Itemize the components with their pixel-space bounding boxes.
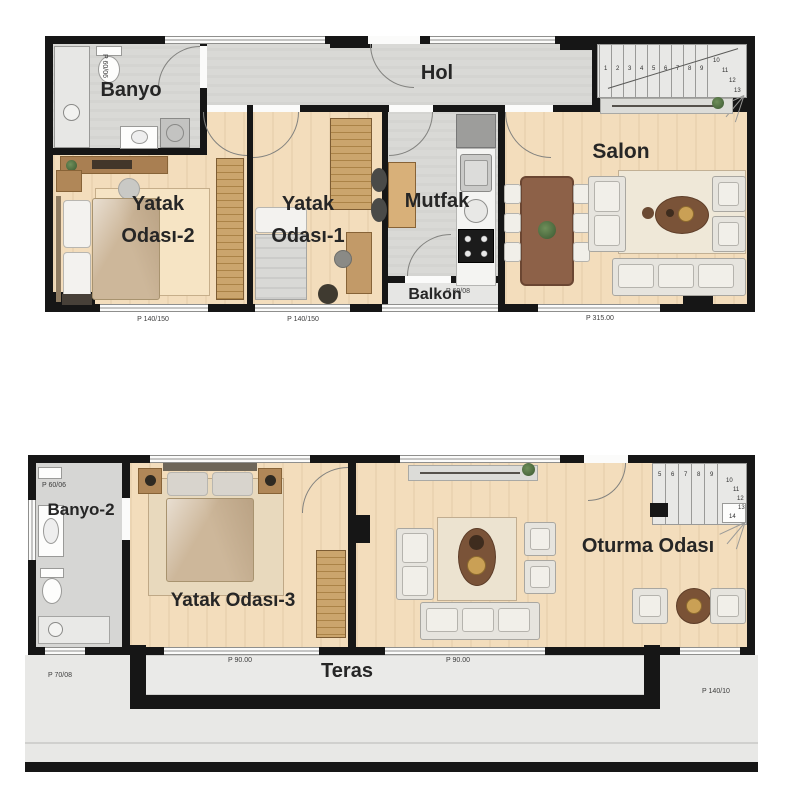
label-mutfak: Mutfak	[405, 190, 469, 213]
armchair-cushion	[530, 566, 550, 588]
armchair-cushion	[718, 182, 739, 206]
dining-centerpiece	[538, 221, 556, 239]
kitchen-chair	[371, 168, 387, 192]
window	[165, 36, 325, 44]
stove	[458, 229, 494, 263]
tray-icon	[678, 206, 694, 222]
label-salon: Salon	[592, 140, 649, 164]
sofa-cushion	[426, 608, 458, 632]
label-yatak1-line1: Yatak	[271, 188, 344, 220]
floor-plan-page: 1 2 3 4 5 6 7 8 9 10 11 12 13	[0, 0, 800, 800]
loveseat-cushion	[594, 215, 620, 246]
stair-step-number: 5	[652, 66, 655, 72]
shower-head-icon	[63, 104, 80, 121]
lamp-icon	[265, 475, 276, 486]
lamp-icon	[145, 475, 156, 486]
desk-chair-yatak1	[334, 250, 352, 268]
dining-chair	[504, 242, 521, 262]
pillow-yatak2	[63, 252, 91, 298]
wall-pier	[560, 36, 600, 50]
armchair-cushion	[530, 528, 550, 550]
entry-opening-lower	[584, 455, 628, 463]
console-rod	[420, 472, 520, 474]
basin-banyo	[131, 130, 148, 144]
label-yatak1-line2: Odası-1	[271, 220, 344, 252]
sink-basin	[464, 160, 488, 186]
sliding-door-teras	[385, 647, 545, 655]
plant-dark-icon	[318, 284, 338, 304]
armchair-cushion	[717, 595, 739, 617]
window	[150, 455, 310, 463]
wall-pier	[650, 503, 668, 517]
stair-step-number: 3	[628, 66, 631, 72]
window-side	[28, 500, 36, 560]
label-banyo: Banyo	[100, 79, 161, 102]
door-opening-salon	[505, 105, 553, 112]
window	[100, 304, 208, 312]
dim-label-salon-window: P 315.00	[586, 315, 614, 322]
wall-pier	[348, 515, 370, 543]
side-table-salon	[642, 207, 654, 219]
console-rod	[612, 105, 720, 107]
dim-label-yatak2-window: P 140/150	[137, 316, 169, 323]
balcony-railing	[382, 304, 498, 312]
wall-pier	[330, 36, 372, 48]
dim-label-banyo2-window: P 70/08	[48, 672, 72, 679]
stair-step-number: 11	[733, 487, 739, 493]
stair-step-number: 7	[684, 472, 687, 478]
door-opening-balkon	[405, 276, 451, 283]
dim-label-teras-window-2: P 90.00	[446, 657, 470, 664]
wardrobe-yatak2	[216, 158, 244, 300]
plant-icon	[712, 97, 724, 109]
pillow-yatak3	[167, 472, 208, 496]
nightstand-yatak2	[56, 170, 82, 192]
label-yatak1: Yatak Odası-1	[271, 188, 344, 252]
stair-step-number: 11	[722, 68, 728, 74]
armchair-cushion	[718, 222, 739, 246]
wall	[498, 112, 505, 304]
dim-label-banyo-side: P 60/06	[101, 54, 108, 78]
shower-drain-icon	[48, 622, 63, 637]
window	[255, 304, 350, 312]
stair-step-number: 13	[738, 505, 745, 511]
loveseat-cushion	[594, 181, 620, 212]
dining-chair	[504, 213, 521, 233]
entry-opening	[368, 36, 420, 44]
label-teras: Teras	[321, 660, 373, 683]
shower-banyo	[54, 46, 90, 148]
label-yatak3: Yatak Odası-3	[171, 590, 296, 612]
teras-wall-right	[644, 645, 660, 709]
stair-step-number: 1	[604, 66, 607, 72]
dim-label-balkon-sill: P 60/08	[446, 288, 470, 295]
stair-step-number: 6	[671, 472, 674, 478]
dim-label-teras-window-1: P 90.00	[228, 657, 252, 664]
stair-step-number: 10	[713, 58, 720, 64]
tray-icon	[686, 598, 702, 614]
wall	[45, 148, 207, 155]
armchair-cushion	[639, 595, 661, 617]
washer-door-icon	[166, 124, 184, 142]
stair-step-number: 4	[640, 66, 643, 72]
decor-dot-icon	[666, 209, 674, 217]
stair-step-number: 8	[688, 66, 691, 72]
window	[680, 647, 740, 655]
window	[538, 304, 660, 312]
window	[400, 455, 560, 463]
label-yatak2: Yatak Odası-2	[121, 188, 194, 252]
pillow-yatak2	[63, 200, 91, 248]
label-oturma: Oturma Odası	[582, 535, 714, 558]
dining-chair	[504, 184, 521, 204]
window	[430, 36, 555, 44]
room-teras	[146, 655, 644, 695]
door-opening-banyo2	[122, 498, 130, 540]
stair-step-number: 8	[697, 472, 700, 478]
bed-headboard-yatak3	[163, 463, 257, 471]
dim-label-yatak1-window: P 140/150	[287, 316, 319, 323]
stair-step-number: 10	[726, 478, 733, 484]
door-opening-mutfak	[389, 105, 433, 112]
basin-banyo2	[43, 518, 59, 544]
stair-step-number: 7	[676, 66, 679, 72]
toilet-banyo2	[40, 568, 64, 578]
window	[45, 647, 85, 655]
bed-headboard-yatak2	[56, 196, 61, 302]
apron-line	[25, 742, 758, 744]
stair-step-number: 5	[658, 472, 661, 478]
dim-label-banyo2-side: P 60/06	[42, 482, 66, 489]
stair-step-number: 13	[734, 88, 741, 94]
stair-step-number: 9	[700, 66, 703, 72]
stair-step-number: 12	[737, 496, 744, 502]
dresser-yatak3	[316, 550, 346, 638]
double-bed-yatak3	[166, 498, 254, 582]
tray-icon	[467, 556, 486, 575]
door-opening-yatak2	[207, 105, 247, 112]
label-banyo2: Banyo-2	[47, 500, 114, 520]
stair-step-number: 14	[729, 514, 736, 520]
loveseat-cushion	[402, 533, 428, 563]
sofa-cushion	[618, 264, 654, 288]
toilet-bowl-banyo2	[42, 578, 62, 604]
sofa-cushion	[658, 264, 694, 288]
label-yatak2-line2: Odası-2	[121, 220, 194, 252]
decor-dot-icon	[469, 535, 484, 550]
site-boundary-bar	[25, 762, 758, 772]
door-opening-yatak1	[253, 105, 300, 112]
label-hol: Hol	[421, 62, 453, 85]
stair-step-number: 6	[664, 66, 667, 72]
bed-bench-yatak2	[62, 294, 92, 305]
label-yatak2-line1: Yatak	[121, 188, 194, 220]
stair-step-number: 12	[729, 78, 736, 84]
dim-label-oturma-window: P 140/10	[702, 688, 730, 695]
tv-icon	[92, 160, 132, 169]
stair-step-number: 9	[710, 472, 713, 478]
sofa-cushion	[498, 608, 530, 632]
cabinet-banyo2	[38, 467, 62, 479]
door-opening-banyo	[200, 46, 207, 88]
sliding-door-teras	[164, 647, 319, 655]
stair-step-number: 2	[616, 66, 619, 72]
wall	[122, 463, 130, 647]
loveseat-cushion	[402, 566, 428, 596]
plant-icon	[522, 463, 535, 476]
fridge	[456, 114, 496, 148]
sofa-cushion	[698, 264, 734, 288]
toilet-banyo	[96, 46, 122, 56]
sofa-cushion	[462, 608, 494, 632]
pillow-yatak3	[212, 472, 253, 496]
kitchen-chair	[371, 198, 387, 222]
teras-wall-bottom	[130, 695, 660, 709]
